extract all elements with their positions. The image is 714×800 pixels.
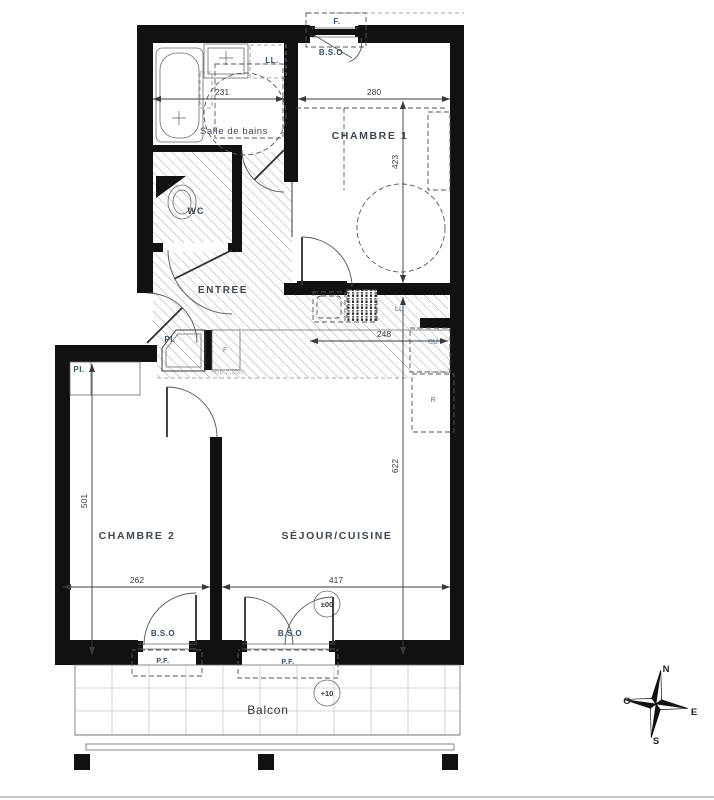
window-sejour: B.S.O P.F. — [238, 597, 338, 678]
level-marker-balcony: +10 — [314, 680, 340, 706]
fridge-label: R — [430, 397, 435, 404]
bso-sejour-label: B.S.O — [278, 629, 302, 638]
balcon-label: Balcon — [247, 703, 289, 717]
door-chambre2 — [167, 387, 217, 437]
sejour-room: SÉJOUR/CUISINE ±00 — [281, 529, 392, 617]
door-chambre1 — [302, 237, 352, 287]
pf-chambre2-label: P.F. — [156, 658, 169, 665]
placard-entree-label: Pl. — [164, 335, 175, 344]
window-chambre2: B.S.O P.F. — [132, 593, 202, 676]
dim-423: 423 — [390, 155, 400, 169]
balcony: Balcon +10 — [0, 665, 714, 797]
floor-plan-page: F. B.S.O LL. Salle de bains WC — [0, 0, 714, 800]
dim-280: 280 — [367, 87, 381, 97]
sejour-label: SÉJOUR/CUISINE — [281, 529, 392, 542]
compass-south: S — [653, 736, 659, 747]
balcony-railing — [74, 735, 460, 770]
cuisson-label: CU — [428, 339, 438, 346]
bathtub-icon — [156, 48, 203, 142]
placard-chambre2-label: Pl. — [73, 365, 84, 374]
salle-de-bains: LL. Salle de bains — [156, 44, 286, 155]
chambre1-room: CHAMBRE 1 — [296, 108, 450, 272]
compass-west: O — [623, 696, 630, 707]
bso-top-label: B.S.O — [319, 48, 343, 57]
wc-label: WC — [188, 206, 205, 216]
salle-de-bains-label: Salle de bains — [200, 126, 268, 137]
bso-chambre2-label: B.S.O — [151, 629, 175, 638]
svg-text:±00: ±00 — [321, 600, 333, 609]
dim-417: 417 — [329, 575, 343, 585]
dishwasher-icon — [347, 290, 377, 322]
four-label: F — [223, 347, 228, 354]
turning-circle — [204, 73, 286, 155]
window-top: F. B.S.O — [306, 13, 366, 62]
turning-circle-chambre1 — [357, 184, 445, 272]
entree-label: ENTREE — [198, 285, 248, 296]
dim-262: 262 — [130, 575, 144, 585]
balcony-tile-grid — [75, 665, 460, 735]
compass-east: E — [691, 707, 697, 718]
wardrobe-outline — [428, 112, 450, 190]
compass-north: N — [663, 664, 670, 675]
dim-622: 622 — [390, 459, 400, 473]
fridge-zone: R — [412, 374, 454, 432]
chambre2-room: Pl. CHAMBRE 2 — [70, 362, 175, 542]
chambre1-label: CHAMBRE 1 — [332, 130, 409, 142]
window-top-label: F. — [333, 17, 340, 26]
sink-icon — [204, 44, 248, 78]
floor-plan-svg: F. B.S.O LL. Salle de bains WC — [0, 0, 714, 800]
ll-bath-label: LL. — [265, 56, 279, 65]
svg-text:+10: +10 — [321, 689, 334, 698]
chambre2-label: CHAMBRE 2 — [99, 530, 176, 542]
dim-248: 248 — [377, 329, 391, 339]
dim-501: 501 — [79, 494, 89, 508]
dim-231: 231 — [215, 87, 229, 97]
level-marker-interior: ±00 — [314, 591, 340, 617]
